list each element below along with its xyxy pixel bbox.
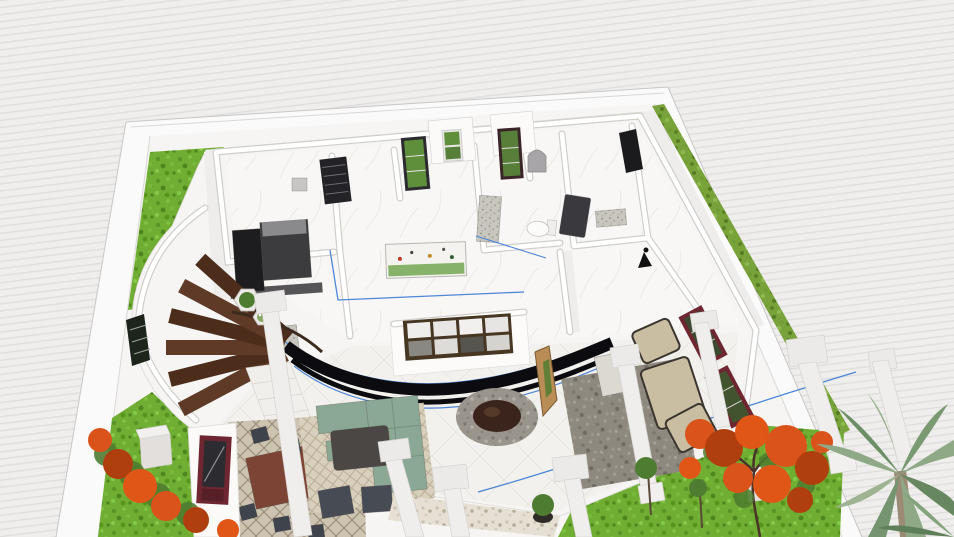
bush-bloom[interactable] — [151, 491, 181, 521]
garden-window[interactable] — [442, 129, 463, 161]
window-pane — [485, 316, 509, 333]
door-glass-garden-view — [500, 130, 520, 176]
planter-plant — [239, 292, 255, 308]
viewport-3d[interactable] — [0, 0, 954, 537]
column-cap — [432, 464, 469, 492]
patterned-door[interactable] — [476, 195, 501, 242]
tree-foliage[interactable] — [689, 479, 707, 497]
dining-chair[interactable] — [273, 516, 291, 533]
grid-window[interactable] — [403, 313, 514, 360]
tree-blossom[interactable] — [753, 465, 791, 503]
tree-blossom[interactable] — [795, 451, 829, 485]
window-pane — [433, 320, 457, 337]
window-pane — [486, 334, 510, 351]
window-pane — [434, 338, 458, 355]
window-pane — [407, 322, 431, 339]
accent-window[interactable] — [196, 435, 232, 505]
shrub-foliage — [532, 494, 554, 516]
fire-pit[interactable] — [456, 388, 538, 446]
column-cap — [610, 344, 641, 368]
fire-pit-logs — [484, 407, 500, 417]
column-base — [638, 482, 665, 504]
column-cap — [378, 438, 411, 462]
window-lower-panel — [201, 488, 224, 501]
window-pane — [460, 336, 484, 353]
tree-blossom[interactable] — [723, 463, 753, 493]
armchair[interactable] — [318, 485, 354, 518]
window-pane — [445, 146, 461, 159]
arch-mirror[interactable] — [528, 150, 546, 172]
dresser[interactable] — [595, 209, 626, 228]
louver-door[interactable] — [319, 156, 351, 204]
tree-blossom[interactable] — [735, 415, 769, 449]
tree-blossom[interactable] — [679, 457, 701, 479]
column-pedestal-front — [140, 434, 172, 469]
window-pane — [444, 131, 460, 145]
window-pane — [459, 318, 483, 335]
fire-pit-bowl[interactable] — [473, 400, 521, 432]
wall-painting[interactable] — [385, 242, 466, 279]
louver-door-panel[interactable] — [319, 156, 351, 204]
potted-shrub[interactable] — [532, 494, 554, 523]
wall-cabinet[interactable] — [292, 178, 307, 191]
bush-bloom[interactable] — [183, 507, 209, 533]
column-cap — [254, 290, 287, 314]
planter-flower — [259, 314, 262, 317]
column-cap — [786, 335, 828, 367]
patio-door-1[interactable] — [401, 136, 431, 191]
patio-door-2[interactable] — [497, 127, 524, 179]
column-cap — [552, 454, 589, 482]
armchair[interactable] — [361, 485, 393, 513]
render-canvas[interactable] — [0, 0, 954, 537]
window-pane — [408, 340, 432, 357]
tree-blossom[interactable] — [787, 487, 813, 513]
tree-foliage[interactable] — [635, 457, 657, 479]
bush-bloom[interactable] — [123, 469, 157, 503]
lamp-top — [644, 248, 649, 253]
bush-bloom[interactable] — [88, 428, 112, 452]
